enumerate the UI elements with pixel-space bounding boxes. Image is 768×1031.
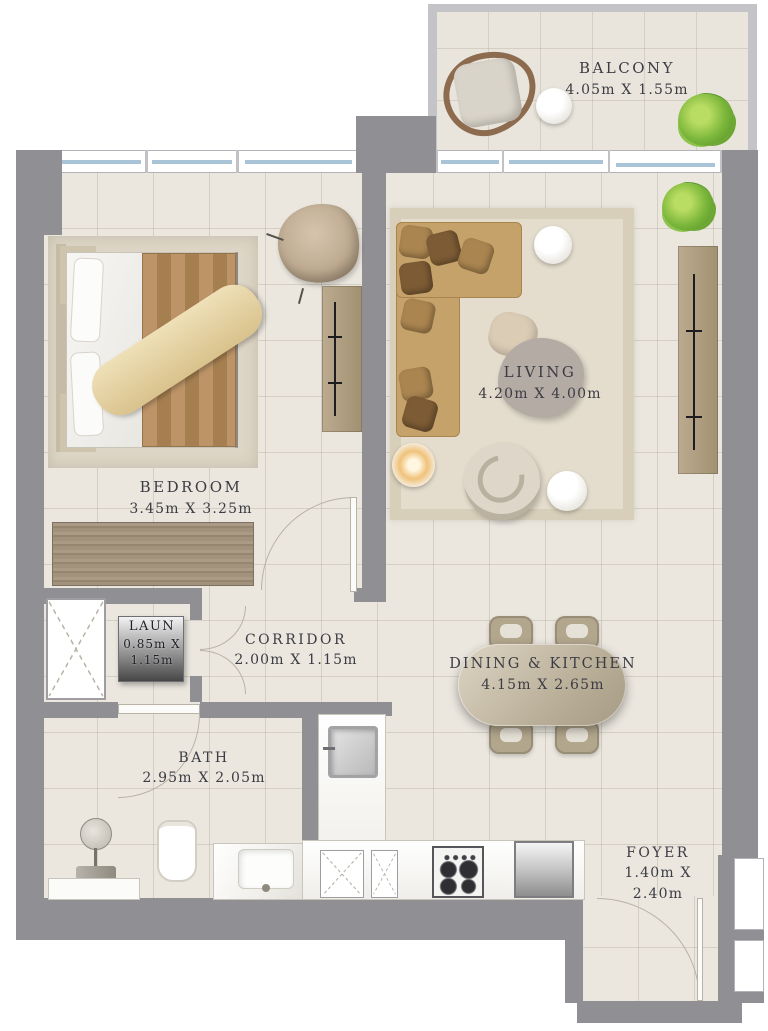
floor-plan: BALCONY 4.05m X 1.55m bbox=[0, 0, 768, 1031]
kitchen-sink-counter bbox=[318, 714, 386, 844]
bed-pillow-1 bbox=[70, 257, 104, 342]
living-name: LIVING bbox=[478, 362, 601, 384]
foyer-niche-1 bbox=[734, 858, 764, 930]
living-dims: 4.20m X 4.00m bbox=[478, 384, 601, 404]
bedroom-window-1 bbox=[58, 150, 145, 173]
wall-foyer-bottom bbox=[577, 1001, 742, 1023]
living-armchair-back bbox=[468, 446, 533, 512]
balcony-wall-right bbox=[748, 4, 757, 152]
bedroom-wardrobe-cabinet bbox=[322, 286, 362, 432]
shaft-x-icon bbox=[48, 600, 104, 698]
dining-label: DINING & KITCHEN 4.15m X 2.65m bbox=[449, 654, 636, 695]
wall-foyer-right bbox=[718, 855, 734, 1003]
stove-icon bbox=[432, 846, 484, 898]
bath-vanity-counter bbox=[213, 843, 303, 900]
bedroom-name: BEDROOM bbox=[129, 477, 252, 499]
kitchen-sink-icon bbox=[328, 726, 378, 778]
bedroom-window-2 bbox=[148, 150, 236, 173]
wall-divider-foot bbox=[354, 588, 386, 602]
bath-label: BATH 2.95m X 2.05m bbox=[142, 748, 265, 789]
living-side-table-top bbox=[534, 226, 572, 264]
wall-left bbox=[16, 150, 44, 940]
wall-right bbox=[722, 150, 758, 858]
laundry-dims-1: 0.85m X bbox=[123, 636, 180, 653]
tv-cabinet bbox=[678, 246, 718, 474]
bedroom-label: BEDROOM 3.45m X 3.25m bbox=[129, 477, 252, 519]
bedroom-dims: 3.45m X 3.25m bbox=[129, 499, 252, 519]
bedroom-closet bbox=[52, 522, 254, 586]
bedroom-door-leaf bbox=[350, 497, 357, 592]
foyer-name: FOYER bbox=[624, 843, 691, 863]
bedroom-wardrobe-handle bbox=[334, 302, 336, 416]
wall-bedroom-living-divider bbox=[362, 150, 386, 597]
kitchen-cabinet-x-1 bbox=[320, 850, 364, 898]
wall-bath-top-left bbox=[42, 702, 118, 718]
balcony-name: BALCONY bbox=[565, 58, 688, 80]
tv-cabinet-handle bbox=[693, 274, 695, 450]
bath-name: BATH bbox=[142, 748, 265, 768]
wall-niche-divider bbox=[734, 930, 764, 940]
living-side-table-bottom bbox=[547, 471, 587, 511]
entrance-door-leaf bbox=[697, 898, 703, 1001]
bath-vanity-faucet bbox=[262, 884, 270, 892]
living-floor-lamp bbox=[392, 443, 435, 487]
toilet-icon bbox=[157, 820, 197, 882]
bath-vanity-basin bbox=[238, 849, 294, 889]
laundry-label: LAUN 0.85m X 1.15m bbox=[123, 618, 180, 669]
dining-name: DINING & KITCHEN bbox=[449, 654, 636, 675]
tv-cabinet-tick-2 bbox=[686, 416, 702, 418]
foyer-dims-1: 1.40m X bbox=[624, 863, 691, 883]
fridge-icon bbox=[514, 841, 574, 898]
living-window-3 bbox=[610, 150, 720, 173]
laundry-dims-2: 1.15m bbox=[123, 652, 180, 669]
wall-niche-bottom bbox=[734, 992, 764, 1003]
corridor-dims: 2.00m X 1.15m bbox=[234, 650, 357, 670]
sofa-cushion-4 bbox=[398, 260, 434, 296]
wall-bottom bbox=[16, 898, 583, 940]
kitchen-cabinet-x-2 bbox=[371, 850, 398, 898]
living-label: LIVING 4.20m X 4.00m bbox=[478, 362, 601, 404]
bath-dims: 2.95m X 2.05m bbox=[142, 768, 265, 788]
balcony-label: BALCONY 4.05m X 1.55m bbox=[565, 58, 688, 100]
wall-foyer-left bbox=[565, 926, 583, 1003]
bedroom-window-3 bbox=[239, 150, 358, 173]
shower-head-icon bbox=[80, 818, 112, 850]
bedroom-wardrobe-tick-2 bbox=[328, 382, 342, 384]
balcony-dims: 4.05m X 1.55m bbox=[565, 80, 688, 100]
foyer-niche-2 bbox=[734, 940, 764, 992]
bedroom-wardrobe-tick-1 bbox=[328, 336, 342, 338]
foyer-label: FOYER 1.40m X 2.40m bbox=[624, 843, 691, 904]
balcony-wall-top bbox=[428, 4, 757, 12]
dining-dims: 4.15m X 2.65m bbox=[449, 675, 636, 695]
wall-bath-top-right bbox=[200, 702, 304, 718]
living-armchair bbox=[464, 443, 540, 520]
shaft-box bbox=[46, 598, 106, 700]
foyer-dims-2: 2.40m bbox=[624, 884, 691, 904]
corridor-name: CORRIDOR bbox=[234, 630, 357, 650]
bath-door-leaf bbox=[118, 704, 200, 714]
tv-cabinet-tick-1 bbox=[686, 330, 702, 332]
living-window-2 bbox=[504, 150, 608, 173]
corridor-label: CORRIDOR 2.00m X 1.15m bbox=[234, 630, 357, 671]
shower-tray bbox=[48, 878, 140, 900]
laundry-name: LAUN bbox=[123, 618, 180, 636]
balcony-chair-cushion bbox=[452, 56, 524, 130]
kitchen-sink-faucet bbox=[323, 747, 335, 750]
living-window-1 bbox=[438, 150, 502, 173]
